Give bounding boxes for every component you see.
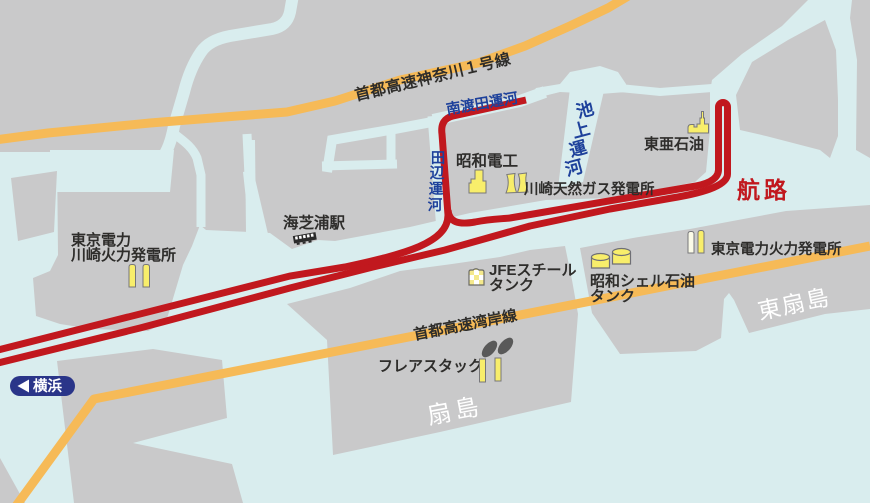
svg-text:東京電力火力発電所: 東京電力火力発電所 xyxy=(711,240,842,258)
svg-text:タンク: タンク xyxy=(590,288,635,305)
svg-text:河: 河 xyxy=(428,196,443,214)
svg-text:昭和電工: 昭和電工 xyxy=(456,152,519,170)
svg-text:横浜: 横浜 xyxy=(33,377,62,395)
svg-text:タンク: タンク xyxy=(489,277,534,294)
svg-text:田: 田 xyxy=(431,150,446,167)
svg-text:川崎火力発電所: 川崎火力発電所 xyxy=(70,246,176,264)
svg-text:東亜石油: 東亜石油 xyxy=(644,135,704,153)
svg-text:川崎天然ガス発電所: 川崎天然ガス発電所 xyxy=(523,180,655,198)
svg-text:航路: 航路 xyxy=(737,177,791,203)
svg-text:運: 運 xyxy=(429,181,444,198)
svg-text:海芝浦駅: 海芝浦駅 xyxy=(283,213,346,232)
svg-text:辺: 辺 xyxy=(430,164,445,182)
svg-text:フレアスタック: フレアスタック xyxy=(378,358,483,375)
